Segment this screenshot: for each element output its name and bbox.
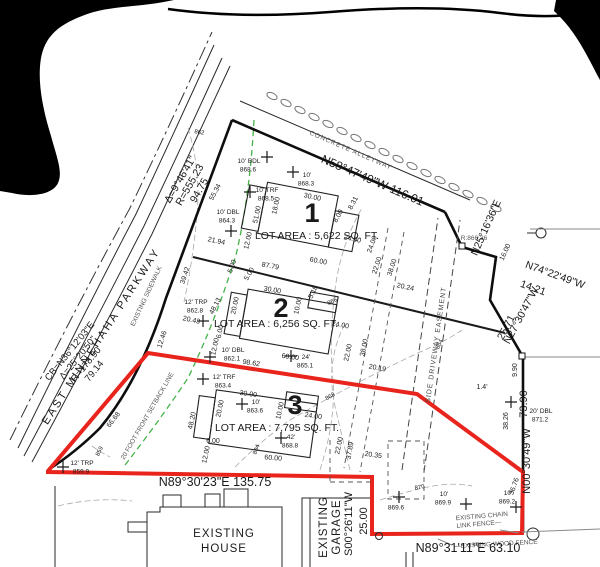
scan-border bbox=[0, 0, 600, 195]
survey-plat-map: EAST MINNEHAHA PARKWAY EXISTING SIDEWALK… bbox=[0, 0, 600, 567]
tree-size-label: 10' bbox=[440, 491, 448, 498]
dimension-label: 6.00 bbox=[216, 324, 226, 339]
house-porch-2 bbox=[205, 494, 220, 507]
tree-size-label: 10' DBL bbox=[222, 347, 245, 354]
dimension-label: 12.00 bbox=[201, 445, 212, 464]
dimension-label: 30.00 bbox=[239, 390, 257, 399]
tree-elevation-label: 869.2 bbox=[499, 499, 516, 506]
retaining-wall-ellipse bbox=[378, 147, 391, 157]
bearing-label: N25°16'36"E bbox=[469, 198, 504, 257]
dimension-label: 5.18 bbox=[308, 285, 320, 300]
tree-size-label: 10' bbox=[303, 172, 311, 179]
dimension-label: 30.00 bbox=[263, 286, 282, 296]
tree-size-label: 10' BDL bbox=[238, 158, 261, 165]
retaining-wall-ellipse bbox=[448, 182, 461, 192]
dimension-label: 8.00 bbox=[332, 209, 345, 224]
dimension-label: 10.00 bbox=[293, 296, 304, 315]
dimension-label: 20.00 bbox=[215, 399, 226, 418]
house-porch-3 bbox=[224, 489, 248, 507]
retaining-wall-ellipse bbox=[420, 168, 433, 178]
tree-elevation-label: 863.6 bbox=[247, 408, 264, 415]
contour-label: 864 bbox=[253, 443, 262, 455]
tree-elevation-label: 868.5 bbox=[258, 196, 275, 203]
tree-cross-icon bbox=[225, 225, 237, 237]
dimension-label: 21.94 bbox=[207, 236, 226, 247]
tree-cross-icon bbox=[505, 396, 517, 408]
house-label-line2: HOUSE bbox=[201, 543, 247, 555]
tree-elevation-label: 868.3 bbox=[298, 181, 315, 188]
bearing-label: N00°30'49"W bbox=[521, 428, 533, 494]
tree-size-label: 10' bbox=[504, 490, 512, 497]
post-lines bbox=[406, 552, 413, 567]
lot1-number: 1 bbox=[304, 198, 319, 228]
dimension-label: 12.00 bbox=[210, 337, 221, 356]
dimension-label: 20.35 bbox=[364, 451, 382, 460]
house-wing bbox=[128, 522, 147, 532]
lot3-number: 3 bbox=[287, 390, 302, 420]
dimension-label: 1.4' bbox=[476, 384, 487, 391]
contour-label: 859 bbox=[95, 445, 105, 457]
dimension-label: 6.00 bbox=[206, 438, 220, 445]
tree-elevation-label: 863.4 bbox=[215, 383, 232, 390]
dimension-label: 22.00 bbox=[372, 256, 384, 275]
dimension-label: 16.00 bbox=[499, 243, 513, 262]
dimension-label: 20.19 bbox=[368, 364, 387, 374]
dimension-label: 55.34 bbox=[208, 183, 222, 202]
tree-elevation-label: 859.9 bbox=[73, 469, 90, 476]
retaining-wall-ellipse bbox=[308, 112, 321, 122]
dimension-label: 39.42 bbox=[180, 266, 192, 285]
dimension-label: 37.89 bbox=[346, 441, 356, 460]
tree-elevation-label: 869.9 bbox=[435, 500, 452, 507]
dimension-label: 24.00 bbox=[304, 412, 322, 421]
retaining-wall-ellipse bbox=[392, 154, 405, 164]
alley-wall-symbol bbox=[266, 91, 503, 213]
dimension-label: 5.00 bbox=[227, 259, 238, 274]
dimension-label: 22.00 bbox=[334, 436, 345, 455]
dimension-label: 12.00 bbox=[243, 231, 254, 250]
tree-size-label: 12' TRP bbox=[70, 460, 93, 467]
dimension-label: 66.68 bbox=[106, 411, 122, 429]
retaining-wall-ellipse bbox=[280, 98, 293, 108]
lot2-area: LOT AREA : 6,256 SQ. FT. bbox=[214, 318, 338, 330]
retaining-wall-ellipse bbox=[294, 105, 307, 115]
bearing-label: N89°30'23"E 135.75 bbox=[159, 475, 272, 489]
scan-edge-top bbox=[168, 8, 567, 16]
wood-fence-line bbox=[522, 529, 600, 532]
dimension-label: 38.00 bbox=[387, 258, 399, 277]
tree-elevation-label: 869.6 bbox=[388, 505, 405, 512]
tree-elevation-label: 871.2 bbox=[532, 417, 549, 424]
dimension-label: 8.31 bbox=[347, 196, 360, 211]
scan-corner-top-right bbox=[554, 0, 600, 80]
tree-elevation-label: 864.3 bbox=[219, 218, 236, 225]
house-label-line1: EXISTING bbox=[193, 528, 255, 540]
bearing-label: N89°31'11"E 63.10 bbox=[416, 541, 521, 555]
dimension-label: 60.00 bbox=[309, 256, 328, 266]
retaining-wall-ellipse bbox=[434, 175, 447, 185]
dimension-label: 87.79 bbox=[261, 261, 280, 271]
tree-size-label: 20' DBL bbox=[530, 408, 553, 415]
dimension-label: 48.13 bbox=[208, 297, 222, 316]
tree-elevation-label: 868.8 bbox=[282, 443, 299, 450]
tree-cross-icon bbox=[197, 373, 209, 385]
dimension-label: 10.00 bbox=[275, 401, 286, 420]
parkway-road-lines bbox=[10, 32, 230, 462]
dimension-label: 20.00 bbox=[230, 296, 241, 315]
dimension-label: 38.00 bbox=[359, 338, 370, 357]
tree-cross-icon bbox=[393, 491, 405, 503]
plat-drawing: EAST MINNEHAHA PARKWAY EXISTING SIDEWALK… bbox=[0, 0, 600, 567]
tree-elevation-label: 862.1 bbox=[224, 356, 241, 363]
retaining-wall-ellipse bbox=[350, 133, 363, 143]
corner-marker-square bbox=[519, 353, 525, 359]
bearing-label: S00°26'11"W bbox=[343, 491, 355, 556]
dimension-label: 60.00 bbox=[281, 353, 299, 362]
tree-cross-icon bbox=[261, 151, 273, 163]
pad-lot3-left bbox=[194, 396, 216, 440]
retaining-wall-ellipse bbox=[406, 161, 419, 171]
road-name-label: EAST MINNEHAHA PARKWAY bbox=[40, 246, 163, 427]
corner-marker-square2 bbox=[459, 243, 465, 249]
garage-label: EXISTING GARAGE bbox=[318, 496, 343, 558]
tree-cross-icon bbox=[287, 166, 299, 178]
bearing-label: 73.90 bbox=[518, 390, 530, 418]
dimension-label: 22.00 bbox=[343, 343, 354, 362]
dimension-label: 12.46 bbox=[157, 330, 169, 349]
tree-elevation-label: 865.1 bbox=[297, 363, 314, 370]
bearing-label: 25.00 bbox=[358, 507, 370, 535]
contour-label: 862 bbox=[194, 129, 206, 137]
tree-cross-icon bbox=[460, 498, 472, 510]
dimension-label: 38.26 bbox=[503, 412, 510, 430]
tree-size-label: 12' TRF bbox=[213, 374, 236, 381]
retaining-wall-ellipse bbox=[322, 119, 335, 129]
dimension-label: 20.24 bbox=[396, 282, 415, 293]
boundary-west-parkway bbox=[48, 120, 232, 470]
retaining-wall-ellipse bbox=[336, 126, 349, 136]
retaining-wall-ellipse bbox=[364, 140, 377, 150]
curve-data-upper: Δ=9°46'41"R=555.2394.75 bbox=[162, 154, 218, 217]
contour-label: 868 bbox=[325, 392, 337, 403]
tree-cross-icon bbox=[244, 186, 256, 198]
tree-size-label: 12' TRP bbox=[184, 299, 207, 306]
scan-corner-top-left bbox=[0, 0, 174, 195]
garage-label-line1: EXISTING bbox=[318, 496, 330, 558]
contour-near-house bbox=[58, 500, 132, 506]
tree-size-label: 10' TRF bbox=[256, 187, 279, 194]
tree-size-label: 10' bbox=[252, 399, 260, 406]
garage-label-line2: GARAGE bbox=[331, 499, 343, 554]
contour-870 bbox=[380, 484, 472, 500]
tree-size-label: 10' DBL bbox=[217, 209, 240, 216]
lot3-area: LOT AREA : 7,795 SQ. FT. bbox=[215, 422, 339, 434]
tree-size-label: 24' bbox=[302, 354, 310, 361]
tree-elevation-label: 868.6 bbox=[240, 167, 257, 174]
dimension-label: 9.90 bbox=[512, 363, 519, 377]
dimension-label: 60.00 bbox=[264, 454, 282, 463]
retaining-wall-ellipse bbox=[266, 91, 279, 101]
retaining-wall-ellipse bbox=[476, 196, 489, 206]
tree-size-label: 42' bbox=[287, 434, 295, 441]
house-porch-1 bbox=[163, 495, 181, 507]
tree-elevation-label: 862.8 bbox=[187, 308, 204, 315]
